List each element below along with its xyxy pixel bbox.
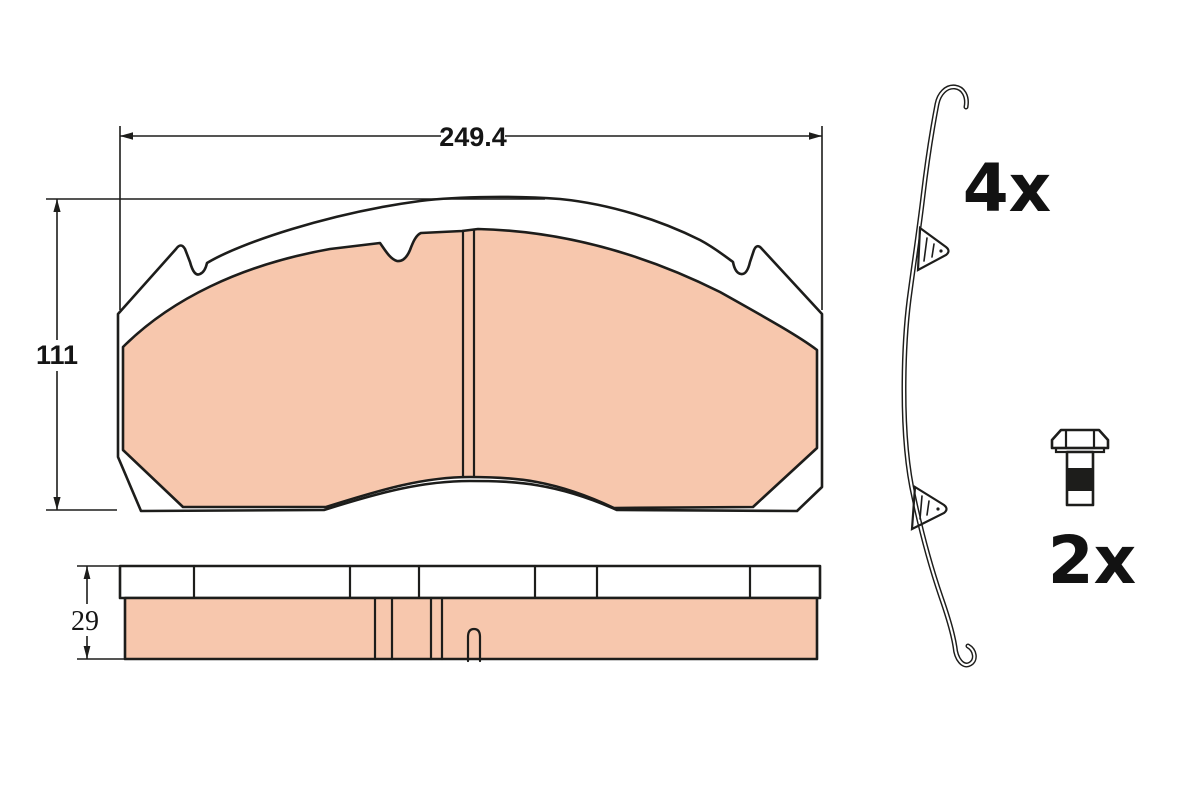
thickness-value: 29 [71, 606, 99, 637]
bolt-thread-band [1067, 468, 1093, 491]
spring-clip: 4x [904, 87, 1051, 665]
height-value: 111 [36, 340, 78, 370]
bolt-quantity-label: 2x [1048, 522, 1137, 599]
brake-pad-technical-drawing: 249.4 111 [0, 0, 1200, 800]
clip-lug-upper [918, 228, 949, 270]
front-view: 249.4 111 [36, 122, 822, 511]
width-value: 249.4 [439, 122, 507, 152]
dimension-thickness: 29 [71, 566, 126, 659]
mounting-bolt: 2x [1048, 430, 1137, 599]
side-view: 29 [71, 566, 820, 661]
bolt-head [1052, 430, 1108, 448]
clip-quantity-label: 4x [963, 150, 1052, 227]
side-backplate [120, 566, 820, 598]
